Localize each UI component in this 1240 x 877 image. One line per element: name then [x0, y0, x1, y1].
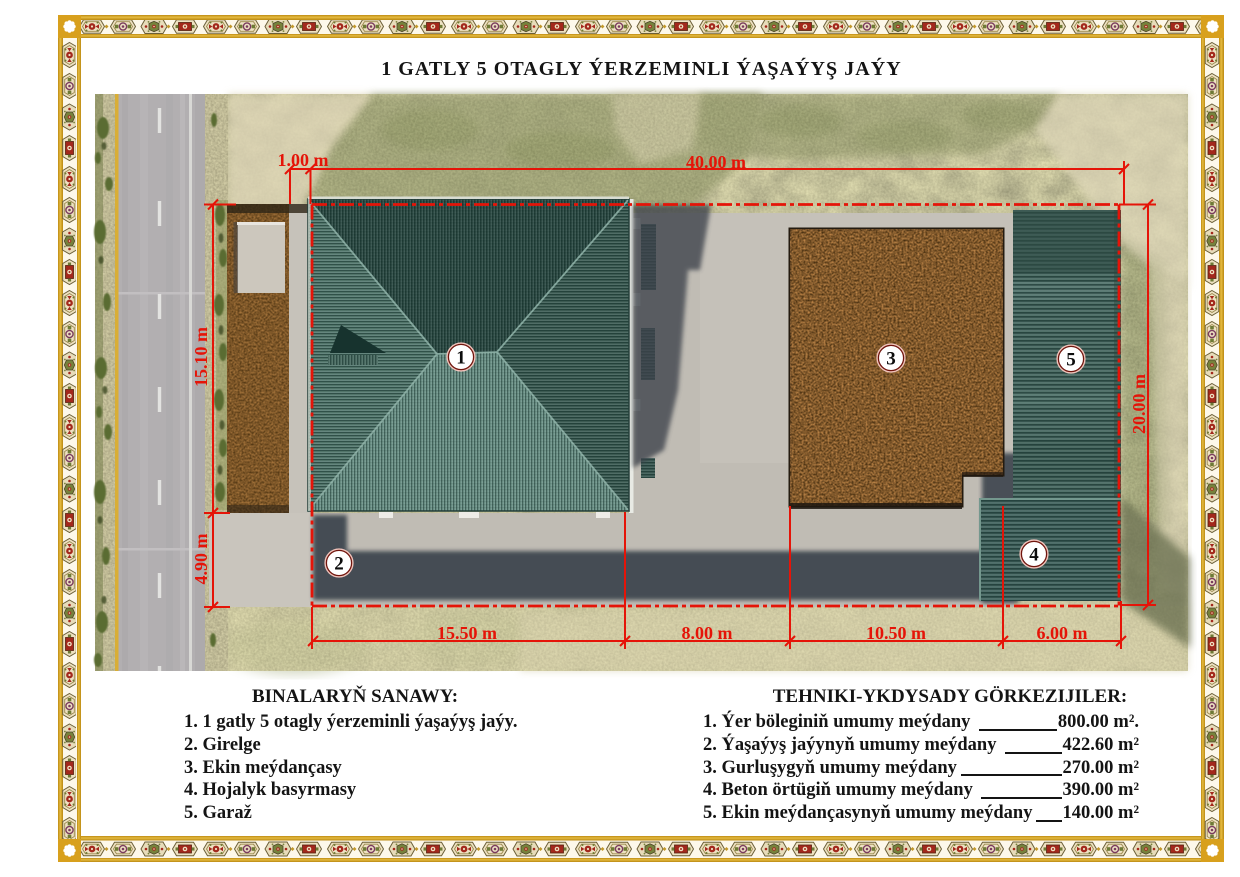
- svg-text:4: 4: [1029, 545, 1039, 566]
- svg-text:5: 5: [1066, 350, 1076, 371]
- svg-text:20.00 m: 20.00 m: [1129, 374, 1149, 434]
- svg-text:40.00 m: 40.00 m: [686, 152, 746, 172]
- svg-text:4.90 m: 4.90 m: [191, 534, 211, 585]
- svg-text:15.50 m: 15.50 m: [437, 623, 497, 643]
- svg-text:1.00 m: 1.00 m: [278, 150, 329, 170]
- svg-text:8.00 m: 8.00 m: [682, 623, 733, 643]
- svg-text:2: 2: [334, 554, 344, 575]
- svg-text:1: 1: [456, 348, 466, 369]
- svg-text:15.10 m: 15.10 m: [191, 327, 211, 387]
- svg-text:6.00 m: 6.00 m: [1037, 623, 1088, 643]
- svg-text:10.50 m: 10.50 m: [866, 623, 926, 643]
- svg-text:3: 3: [886, 349, 896, 370]
